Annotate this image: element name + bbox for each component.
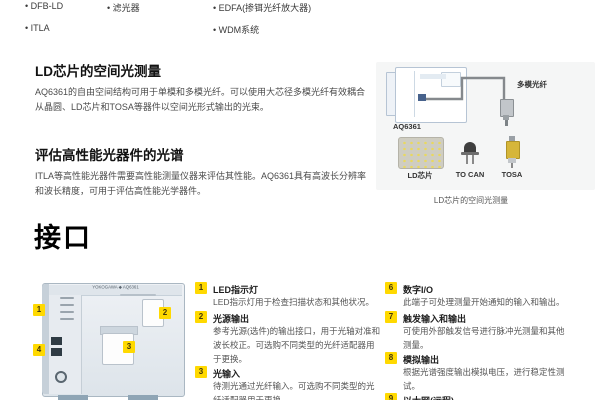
section-heading: 评估高性能光器件的光谱 bbox=[35, 144, 184, 164]
item-number: 9 bbox=[385, 393, 397, 400]
to-can-icon bbox=[464, 142, 476, 152]
brand-text: YOKOGAWA ◆ AQ6361 bbox=[68, 285, 164, 290]
bullet-item: WDM系统 bbox=[213, 23, 259, 36]
usb-port bbox=[51, 337, 62, 345]
item-desc: 根据光谱强度输出模拟电压，进行稳定性测试。 bbox=[403, 365, 567, 393]
to-can-label: TO CAN bbox=[454, 170, 486, 179]
wafer-label: LD芯片 bbox=[398, 170, 442, 181]
item-number: 8 bbox=[385, 352, 397, 364]
led-label bbox=[60, 304, 74, 306]
tosa-body bbox=[506, 141, 520, 159]
usb-port bbox=[51, 348, 62, 356]
chassis-side bbox=[42, 284, 49, 394]
to-can-leg bbox=[472, 155, 474, 164]
instrument-foot bbox=[128, 395, 158, 400]
callout-3: 3 bbox=[123, 341, 135, 353]
item-desc: 可使用外部触发信号进行脉冲光测量和其他测量。 bbox=[403, 324, 567, 352]
item-desc: 此端子可处理测量开始通知的输入和输出。 bbox=[403, 295, 567, 309]
wafer-icon bbox=[398, 137, 444, 169]
callout-4: 4 bbox=[33, 344, 45, 356]
fiber-label: 多模光纤 bbox=[517, 79, 547, 90]
to-can-leg bbox=[466, 155, 468, 164]
section-paragraph: AQ6361的自由空间结构可用于单模和多模光纤。可以使用大芯径多模光纤有效耦合从… bbox=[35, 85, 373, 115]
item-number: 6 bbox=[385, 282, 397, 294]
brochure-page: DFB-LD 滤光器 EDFA(掺铒光纤放大器) ITLA WDM系统 LD芯片… bbox=[0, 0, 600, 400]
item-desc: 待测光通过光纤输入。可选购不同类型的光纤适配器用于更换。 bbox=[213, 379, 382, 400]
item-number: 3 bbox=[195, 366, 207, 378]
led-label bbox=[60, 318, 74, 320]
figure-spatial-light: AQ6361 多模光纤 LD芯片 TO CAN TOSA bbox=[376, 62, 595, 190]
item-number: 2 bbox=[195, 311, 207, 323]
bullet-item: 滤光器 bbox=[107, 1, 140, 14]
led-label bbox=[60, 297, 74, 299]
tosa-label: TOSA bbox=[500, 170, 524, 179]
front-panel-image: YOKOGAWA ◆ AQ6361 1 2 3 4 bbox=[36, 282, 186, 400]
callout-1: 1 bbox=[33, 304, 45, 316]
item-number: 7 bbox=[385, 311, 397, 323]
analyzer-label: AQ6361 bbox=[393, 122, 421, 131]
item-desc: 参考光源(选件)的输出接口，用于光轴对准和波长校正。可选购不同类型的光纤适配器用… bbox=[213, 324, 382, 366]
item-desc: LED指示灯用于检查扫描状态和其他状况。 bbox=[213, 295, 382, 309]
to-can-flange bbox=[461, 152, 479, 155]
tosa-pin bbox=[511, 163, 513, 168]
fiber-connector-tip bbox=[505, 120, 508, 126]
item-title: 以太网(远程) bbox=[403, 394, 454, 400]
bullet-item: ITLA bbox=[25, 23, 50, 33]
item-number: 1 bbox=[195, 282, 207, 294]
instrument-foot bbox=[58, 395, 88, 400]
bullet-item: EDFA(掺铒光纤放大器) bbox=[213, 1, 311, 14]
led-label bbox=[60, 311, 74, 313]
fiber-cable bbox=[424, 74, 510, 104]
bullet-item: DFB-LD bbox=[25, 1, 63, 11]
page-title-interface: 接口 bbox=[34, 216, 92, 255]
callout-2: 2 bbox=[159, 307, 171, 319]
section-paragraph: ITLA等高性能光器件需要高性能测量仪器来评估其性能。AQ6361具有高波长分辨… bbox=[35, 169, 375, 199]
power-button bbox=[55, 371, 67, 383]
section-heading: LD芯片的空间光测量 bbox=[35, 60, 161, 80]
door-label bbox=[120, 294, 156, 296]
analyzer-left-strip bbox=[400, 71, 415, 117]
figure-caption: LD芯片的空间光测量 bbox=[366, 195, 576, 206]
